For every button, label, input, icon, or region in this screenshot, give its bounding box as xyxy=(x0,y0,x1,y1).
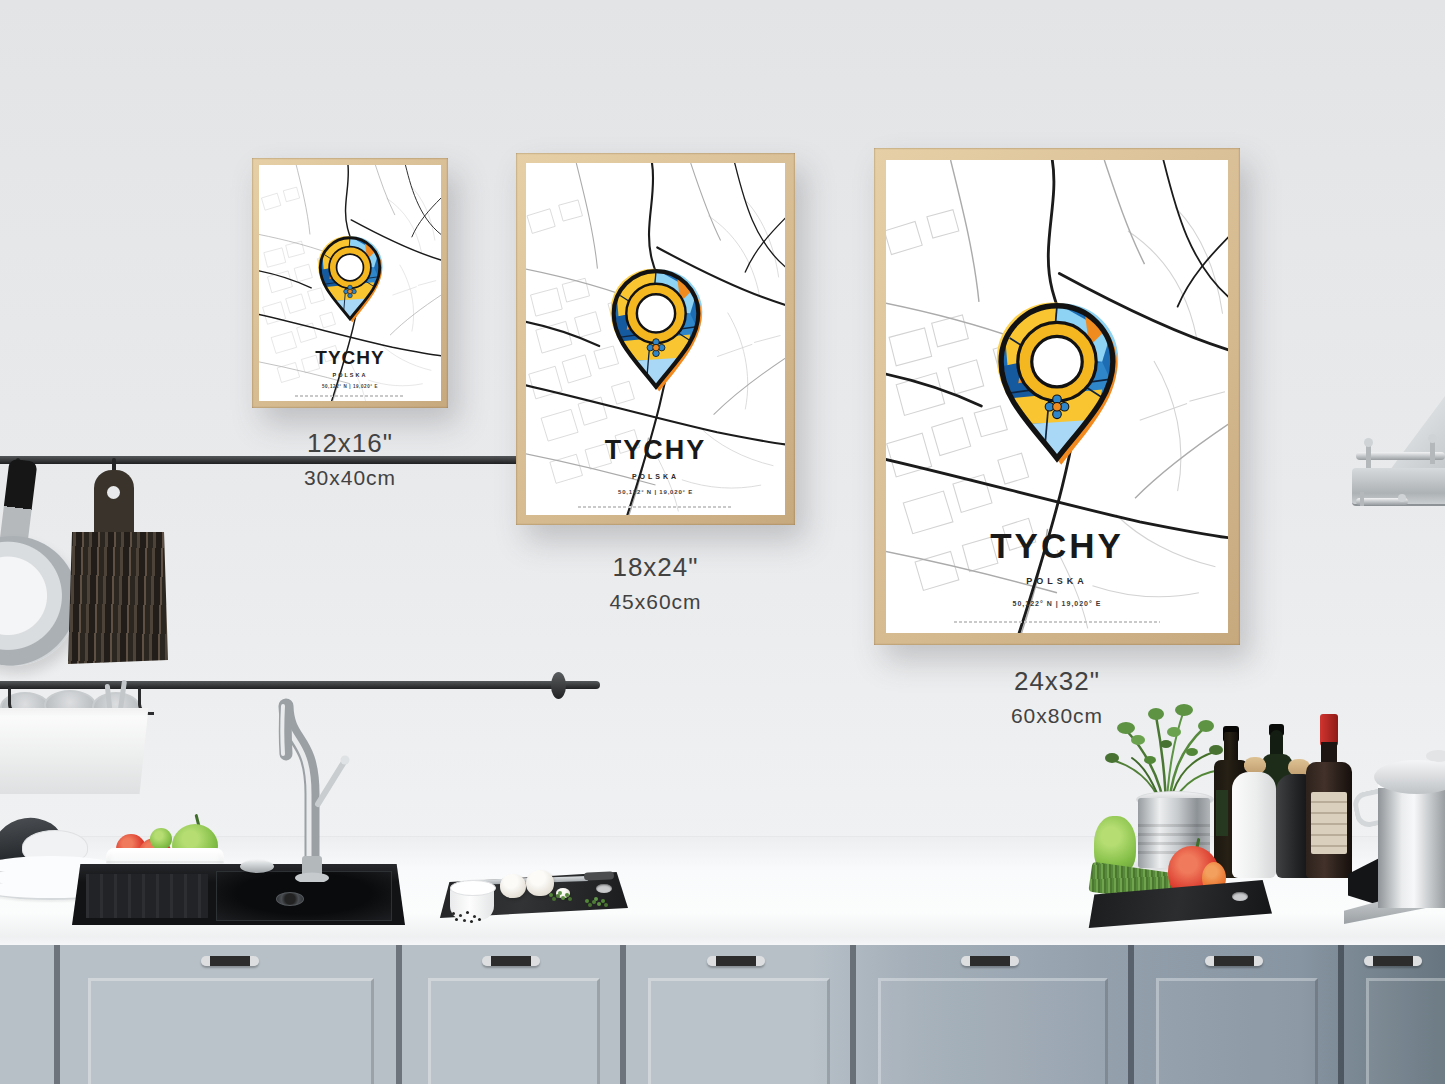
cabinet-handle[interactable] xyxy=(707,956,765,966)
cabinet-door-panel[interactable] xyxy=(878,978,1108,1084)
cabinet-handle[interactable] xyxy=(1364,956,1422,966)
poster-coordinates: 50,122° N | 19,020° E xyxy=(886,599,1228,606)
hood-rail-ball xyxy=(1398,494,1406,502)
framed-poster-large[interactable]: TYCHY POLSKA 50,122° N | 19,020° E xyxy=(874,148,1240,645)
hood-rail-ball xyxy=(1428,434,1437,443)
peppercorns xyxy=(452,912,455,915)
poster-coordinates: 50,122° N | 19,020° E xyxy=(259,383,441,388)
cabinet-door-panel[interactable] xyxy=(648,978,830,1084)
cabinet-handle[interactable] xyxy=(201,956,259,966)
rail-finial xyxy=(551,672,566,699)
cabinet-handle[interactable] xyxy=(961,956,1019,966)
map-pin-icon xyxy=(982,295,1132,467)
poster-credit-line xyxy=(954,621,1159,623)
white-pepper-grinder xyxy=(1232,772,1276,878)
knife-handle xyxy=(584,871,614,880)
stock-pot xyxy=(1378,784,1445,908)
cabinet-door-panel[interactable] xyxy=(1156,978,1318,1084)
size-inches: 12x16" xyxy=(252,428,448,459)
framed-poster-small[interactable]: TYCHY POLSKA 50,122° N | 19,020° E xyxy=(252,158,448,408)
cabinet-handle[interactable] xyxy=(1205,956,1263,966)
poster-subtitle: POLSKA xyxy=(526,473,785,480)
poster-credit-line xyxy=(295,395,404,397)
hood-rail-post xyxy=(1360,492,1364,506)
size-label-large: 24x32" 60x80cm xyxy=(874,666,1240,728)
wine-bottle-label xyxy=(1311,792,1347,854)
oil-bottle-label xyxy=(1216,790,1228,836)
cabinet-door-panel[interactable] xyxy=(428,978,600,1084)
cabinet-door-panel[interactable] xyxy=(1366,978,1445,1084)
poster-title: TYCHY xyxy=(259,348,441,367)
size-cm: 30x40cm xyxy=(252,466,448,490)
dark-board-hole xyxy=(1232,892,1248,901)
wall-rail-bottom xyxy=(0,681,600,689)
map-pin-icon xyxy=(310,232,390,324)
poster-paper: TYCHY POLSKA 50,122° N | 19,020° E xyxy=(526,163,785,515)
cabinet-gap xyxy=(620,945,626,1084)
cabinet-gap xyxy=(1128,945,1134,1084)
hanging-cutting-board-hole xyxy=(107,486,120,499)
herb-sprig xyxy=(592,900,596,904)
poster-paper: TYCHY POLSKA 50,122° N | 19,020° E xyxy=(886,160,1228,633)
cabinet-gap xyxy=(1338,945,1344,1084)
poster-title: TYCHY xyxy=(526,436,785,463)
sink-drain xyxy=(276,892,304,906)
herb-sprig xyxy=(556,894,560,898)
poster-coordinates: 50,122° N | 19,020° E xyxy=(526,489,785,495)
cabinet-gap xyxy=(850,945,856,1084)
faucet xyxy=(252,692,362,882)
size-inches: 24x32" xyxy=(874,666,1240,697)
hood-rail-post xyxy=(1430,442,1435,464)
hood-rail-post xyxy=(1366,446,1371,468)
size-cm: 60x80cm xyxy=(874,704,1240,728)
cabinet-handle[interactable] xyxy=(482,956,540,966)
garlic-bulb xyxy=(500,874,526,898)
size-inches: 18x24" xyxy=(516,552,795,583)
poster-title: TYCHY xyxy=(886,528,1228,563)
framed-poster-medium[interactable]: TYCHY POLSKA 50,122° N | 19,020° E xyxy=(516,153,795,525)
cabinet-gap xyxy=(54,945,60,1084)
green-apple xyxy=(150,828,172,850)
prep-board-hole xyxy=(596,884,612,893)
sink-drainer xyxy=(86,874,208,918)
cabinet-gap xyxy=(396,945,402,1084)
size-cm: 45x60cm xyxy=(516,590,795,614)
size-label-medium: 18x24" 45x60cm xyxy=(516,552,795,614)
prep-cup-rim xyxy=(450,880,496,896)
utensil-bucket xyxy=(0,708,152,794)
hanging-cutting-board-handle xyxy=(94,470,134,538)
poster-subtitle: POLSKA xyxy=(886,576,1228,586)
kitchen-mockup-scene: TYCHY POLSKA 50,122° N | 19,020° E 12x16… xyxy=(0,0,1445,1084)
poster-subtitle: POLSKA xyxy=(259,372,441,378)
poster-credit-line xyxy=(578,506,733,508)
cabinet-door-panel[interactable] xyxy=(88,978,374,1084)
poster-paper: TYCHY POLSKA 50,122° N | 19,020° E xyxy=(259,165,441,401)
map-pin-icon xyxy=(599,263,713,393)
hood-rail-ball xyxy=(1364,438,1373,447)
hanging-cutting-board xyxy=(68,532,168,664)
size-label-small: 12x16" 30x40cm xyxy=(252,428,448,490)
garlic-bulb xyxy=(526,870,554,896)
